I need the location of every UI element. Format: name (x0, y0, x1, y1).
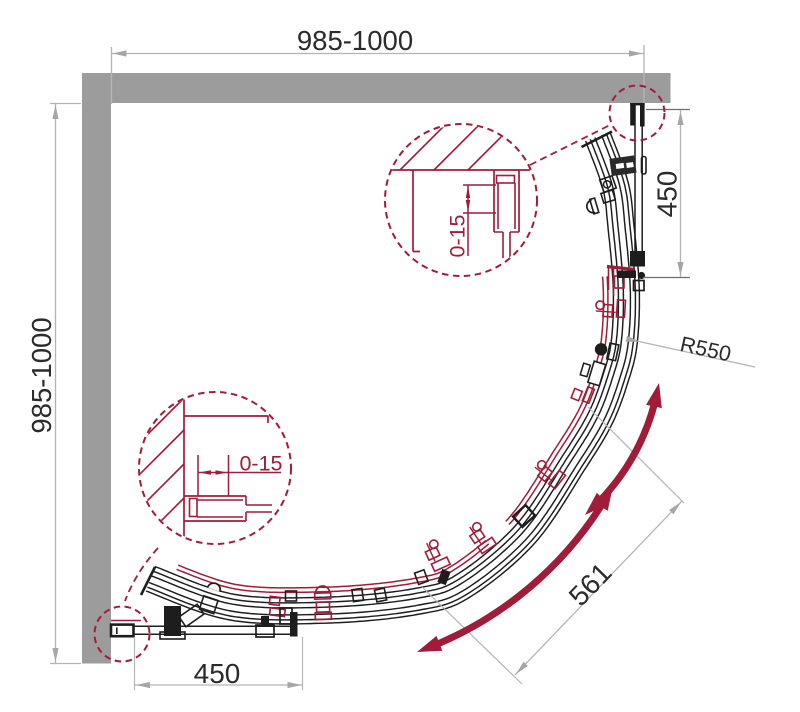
svg-text:0-15: 0-15 (446, 214, 470, 257)
svg-text:985-1000: 985-1000 (26, 317, 57, 433)
svg-text:985-1000: 985-1000 (297, 25, 413, 56)
svg-text:450: 450 (194, 658, 241, 689)
svg-text:0-15: 0-15 (239, 452, 282, 476)
svg-text:450: 450 (652, 171, 683, 218)
svg-text:561: 561 (563, 557, 618, 612)
svg-text:R550: R550 (678, 332, 733, 367)
